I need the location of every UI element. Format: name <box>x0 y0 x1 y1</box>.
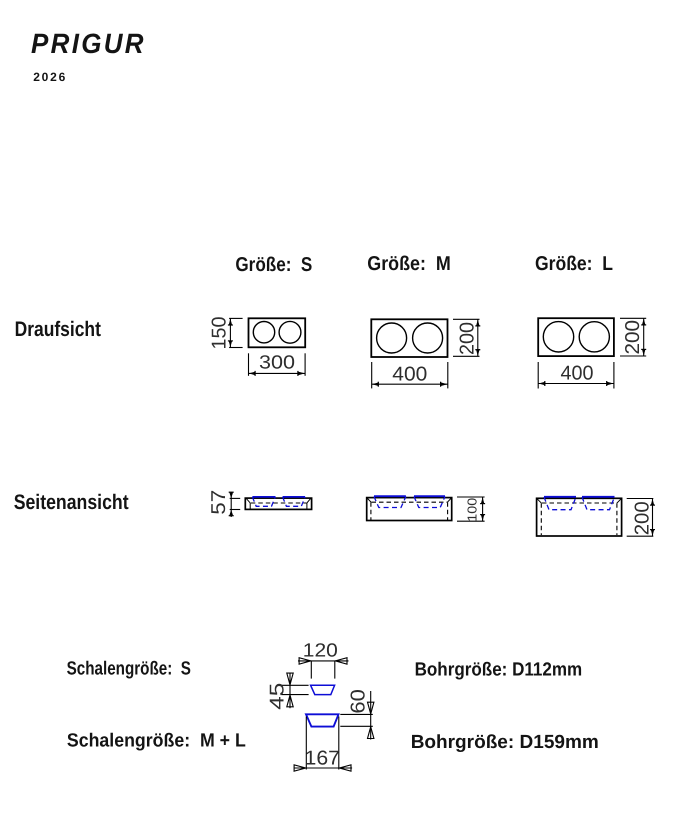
svg-text:150: 150 <box>208 317 230 350</box>
svg-text:400: 400 <box>392 364 427 386</box>
svg-text:Seitenansicht: Seitenansicht <box>14 491 129 514</box>
svg-text:Schalengröße: S: Schalengröße: S <box>67 659 191 680</box>
svg-text:60: 60 <box>348 689 370 714</box>
svg-text:Größe: M: Größe: M <box>367 253 451 275</box>
svg-text:Größe: L: Größe: L <box>535 253 613 275</box>
svg-text:Schalengröße: M + L: Schalengröße: M + L <box>67 731 246 752</box>
svg-text:Bohrgröße: D159mm: Bohrgröße: D159mm <box>411 732 599 753</box>
svg-text:Größe: S: Größe: S <box>235 254 312 276</box>
svg-text:45: 45 <box>267 683 289 710</box>
svg-text:100: 100 <box>465 498 480 522</box>
svg-text:PRIGUR: PRIGUR <box>31 28 146 59</box>
svg-text:200: 200 <box>457 322 479 355</box>
svg-text:200: 200 <box>622 320 644 355</box>
svg-text:167: 167 <box>305 748 341 770</box>
svg-text:300: 300 <box>259 352 295 373</box>
svg-text:Draufsicht: Draufsicht <box>15 318 101 341</box>
svg-text:120: 120 <box>303 641 338 662</box>
svg-text:200: 200 <box>632 501 654 535</box>
svg-text:400: 400 <box>561 362 594 384</box>
svg-text:2026: 2026 <box>33 70 67 84</box>
svg-text:Bohrgröße: D112mm: Bohrgröße: D112mm <box>415 659 583 680</box>
svg-text:57: 57 <box>208 490 230 515</box>
